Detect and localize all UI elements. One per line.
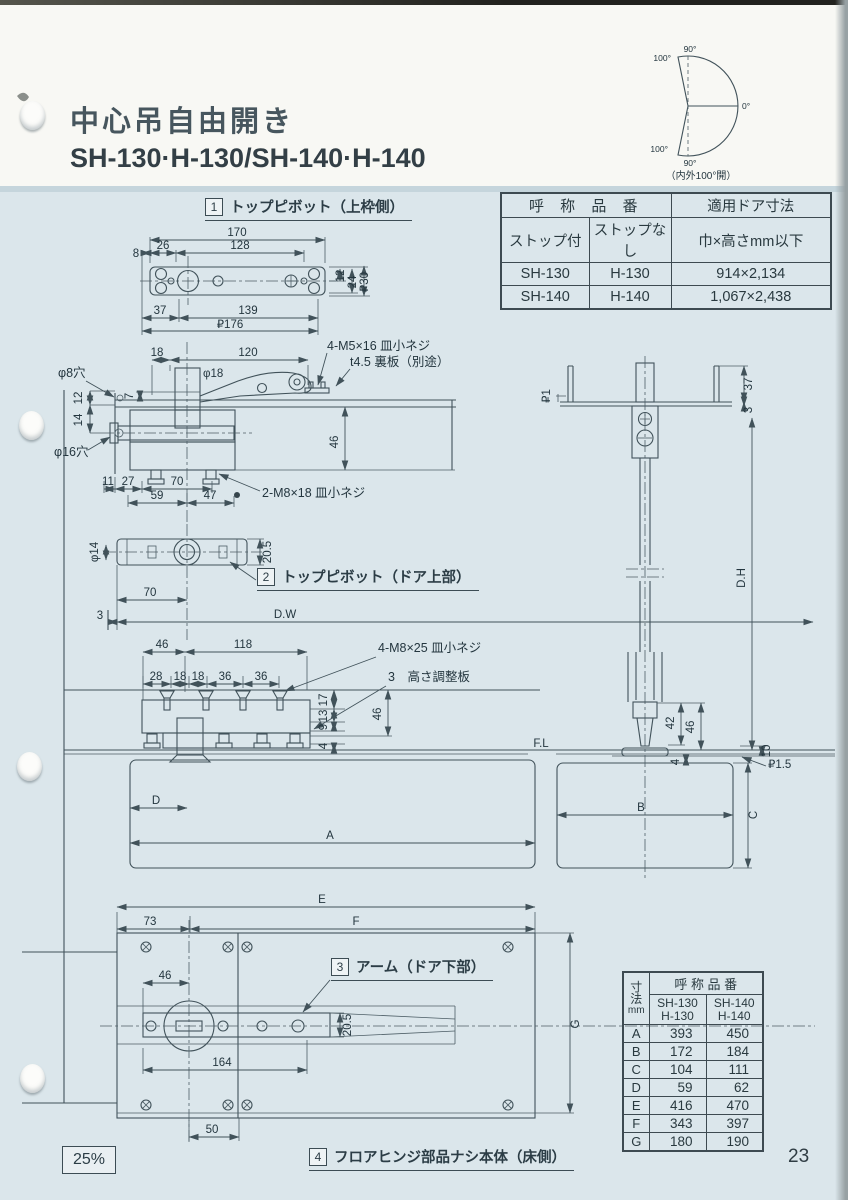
dim-r46: 46	[372, 708, 384, 721]
dim-50: 50	[206, 1124, 219, 1136]
dim-46c: 46	[159, 970, 172, 982]
model-stop-1: SH-130	[501, 263, 589, 286]
dim-v3: 3	[743, 407, 755, 413]
dim-36b: 36	[255, 671, 268, 683]
dim-8: 8	[133, 248, 139, 260]
dim-73: 73	[144, 916, 157, 928]
dim-18: 18	[151, 347, 164, 359]
model-table-sub-stop: ストップ付	[501, 218, 589, 263]
dim-164: 164	[212, 1057, 232, 1069]
dim-3: 3	[97, 610, 103, 622]
dim-C: C	[748, 811, 760, 819]
callout-m8x25: 4-M8×25 皿小ネジ	[378, 641, 481, 655]
dim-E: E	[318, 894, 326, 906]
dim-36a: 36	[219, 671, 232, 683]
angle-90-bottom: 90°	[684, 158, 697, 168]
table-row: SH-130 H-130 914×2,134	[501, 263, 831, 286]
model-table-header-name: 呼 称 品 番	[501, 193, 671, 218]
dim-mortise-30: ₽30	[359, 272, 371, 292]
section-title-2: トップピボット（ドア上部）	[282, 566, 471, 587]
binder-hole	[20, 1064, 45, 1093]
angle-0: 0°	[742, 101, 750, 111]
model-size-2: 1,067×2,438	[671, 286, 831, 309]
dim-table-col1: SH-130H-130	[649, 995, 706, 1025]
dim-4b: 4	[670, 758, 682, 765]
binder-hole	[20, 101, 45, 130]
section-label-4: 4 フロアヒンジ部品ナシ本体（床側）	[309, 1146, 574, 1171]
section-number-4: 4	[309, 1148, 327, 1166]
section-number-3: 3	[331, 958, 349, 976]
dim-27: 27	[122, 476, 135, 488]
dim-139: 139	[238, 305, 257, 317]
table-row: A393450	[623, 1025, 763, 1043]
dim-28: 28	[150, 671, 163, 683]
dim-46b: 46	[685, 721, 697, 734]
dim-table-corner: 寸 法 mm	[623, 972, 649, 1025]
section-number-1: 1	[205, 198, 223, 216]
catalog-page: 中心吊自由開き SH-130·H-130/SH-140·H-140 90° 10…	[0, 0, 848, 1200]
dim-table-col2: SH-140H-140	[706, 995, 763, 1025]
dimension-table: 寸 法 mm 呼 称 品 番 SH-130H-130 SH-140H-140 A…	[622, 971, 764, 1152]
dim-phi14: φ14	[89, 541, 101, 562]
dim-118: 118	[234, 639, 252, 651]
drawing-top-pivot-plate: 170 26 128 8 12 24 ₽30 37 139 ₽176	[133, 227, 371, 335]
dim-59: 59	[151, 490, 164, 502]
dim-B: B	[637, 802, 645, 814]
dim-26: 26	[157, 240, 170, 252]
model-table-header-door: 適用ドア寸法	[671, 193, 831, 218]
scan-right-edge	[835, 0, 848, 1200]
dim-mortise-1: ₽1	[541, 389, 553, 403]
dim-D: D	[152, 795, 160, 807]
model-numbers-title: SH-130·H-130/SH-140·H-140	[70, 143, 426, 174]
dim-18b: 18	[192, 671, 205, 683]
drawing-floor-hinge-section: 46 118 28 18 18 36 36 4-M8×25 皿小ネジ 3 高さ調…	[64, 639, 540, 762]
binder-hole	[19, 411, 44, 440]
dim-170: 170	[227, 227, 246, 239]
dim-20p5b: 20.5	[342, 1014, 354, 1036]
angle-100-bottom: 100°	[650, 144, 668, 154]
model-table-sub-size: 巾×高さmm以下	[671, 218, 831, 263]
dim-A: A	[326, 830, 334, 842]
dim-4: 4	[318, 742, 330, 749]
drawing-floor-line-and-cases: F.L D A B C	[64, 738, 835, 868]
table-row: C104111	[623, 1061, 763, 1079]
dim-door-width: D.W	[274, 609, 297, 621]
section-label-3: 3 アーム（ドア下部）	[331, 956, 493, 981]
dim-128: 128	[230, 240, 249, 252]
table-row: SH-140 H-140 1,067×2,438	[501, 286, 831, 309]
label-hole-phi16: φ16穴	[54, 444, 89, 459]
dim-mortise-176: ₽176	[217, 319, 244, 331]
model-size-1: 914×2,134	[671, 263, 831, 286]
model-nostop-2: H-140	[589, 286, 671, 309]
scan-artifact	[17, 93, 29, 102]
dim-v14: 14	[73, 413, 85, 426]
callout-m5-screws: 4-M5×16 皿小ネジ	[327, 339, 430, 353]
dim-24: 24	[347, 275, 359, 288]
dim-v37: 37	[743, 378, 755, 391]
dim-47: 47	[204, 490, 217, 502]
dim-10: 10	[761, 745, 773, 758]
table-row: G180190	[623, 1133, 763, 1152]
table-row: D5962	[623, 1079, 763, 1097]
page-title: 中心吊自由開き	[70, 98, 294, 140]
callout-m8-screws: 2-M8×18 皿小ネジ	[262, 486, 365, 500]
section-title-3: アーム（ドア下部）	[356, 956, 485, 977]
dim-17: 17	[318, 694, 330, 707]
dim-9: 9	[318, 724, 330, 730]
dim-door-height: D.H	[736, 568, 748, 588]
angle-100-top: 100°	[653, 53, 671, 63]
model-stop-2: SH-140	[501, 286, 589, 309]
reference-dot	[234, 492, 240, 498]
dim-mortise-1p5: ₽1.5	[768, 759, 791, 771]
dim-7: 7	[124, 393, 136, 399]
drawing-top-pivot-section: 18 120 φ18 7 12 14 φ8穴 φ16穴 46 11 27 70 …	[54, 339, 456, 525]
dim-18a: 18	[174, 671, 187, 683]
page-number: 23	[788, 1146, 809, 1168]
opening-angle-diagram: 90° 100° 0° 100° 90° （内外100°開）	[650, 44, 750, 182]
section-number-2: 2	[257, 568, 275, 586]
section-title-1: トップピボット（上枠側）	[230, 196, 404, 217]
model-number-table: 呼 称 品 番 適用ドア寸法 ストップ付 ストップなし 巾×高さmm以下 SH-…	[500, 192, 832, 310]
dim-120: 120	[238, 347, 257, 359]
dim-13: 13	[318, 710, 330, 723]
table-row: E416470	[623, 1097, 763, 1115]
dim-v12: 12	[73, 392, 85, 405]
dim-70: 70	[171, 476, 184, 488]
dim-20p5: 20.5	[262, 541, 274, 563]
callout-height-shim: 3 高さ調整板	[388, 669, 470, 684]
table-row: F343397	[623, 1115, 763, 1133]
dim-70b: 70	[144, 587, 157, 599]
angle-90-top: 90°	[684, 44, 697, 54]
section-title-4: フロアヒンジ部品ナシ本体（床側）	[334, 1146, 566, 1167]
dim-46: 46	[329, 436, 341, 449]
dim-11: 11	[102, 476, 114, 488]
table-row: B172184	[623, 1043, 763, 1061]
dim-phi18: φ18	[203, 368, 223, 380]
callout-back-plate: t4.5 裏板（別途）	[350, 354, 449, 369]
dim-42: 42	[665, 717, 677, 730]
dim-12: 12	[335, 270, 347, 283]
section-label-1: 1 トップピボット（上枠側）	[205, 196, 412, 221]
dim-table-header: 呼 称 品 番	[649, 972, 763, 995]
drawing-scale-badge: 25%	[62, 1146, 116, 1174]
drawing-door-vertical-section: ₽1 37 3 D.H 42 46 10 4 ₽1.5	[541, 356, 835, 880]
dim-F: F	[352, 916, 359, 928]
binder-hole	[17, 752, 42, 781]
label-hole-phi8: φ8穴	[58, 365, 86, 380]
dim-t46: 46	[156, 639, 169, 651]
model-table-sub-nostop: ストップなし	[589, 218, 671, 263]
dim-37: 37	[154, 305, 167, 317]
section-label-2: 2 トップピボット（ドア上部）	[257, 566, 479, 591]
fan-caption: （内外100°開）	[666, 169, 737, 182]
label-floor-level: F.L	[533, 738, 549, 750]
model-nostop-1: H-130	[589, 263, 671, 286]
dim-G: G	[570, 1019, 582, 1028]
